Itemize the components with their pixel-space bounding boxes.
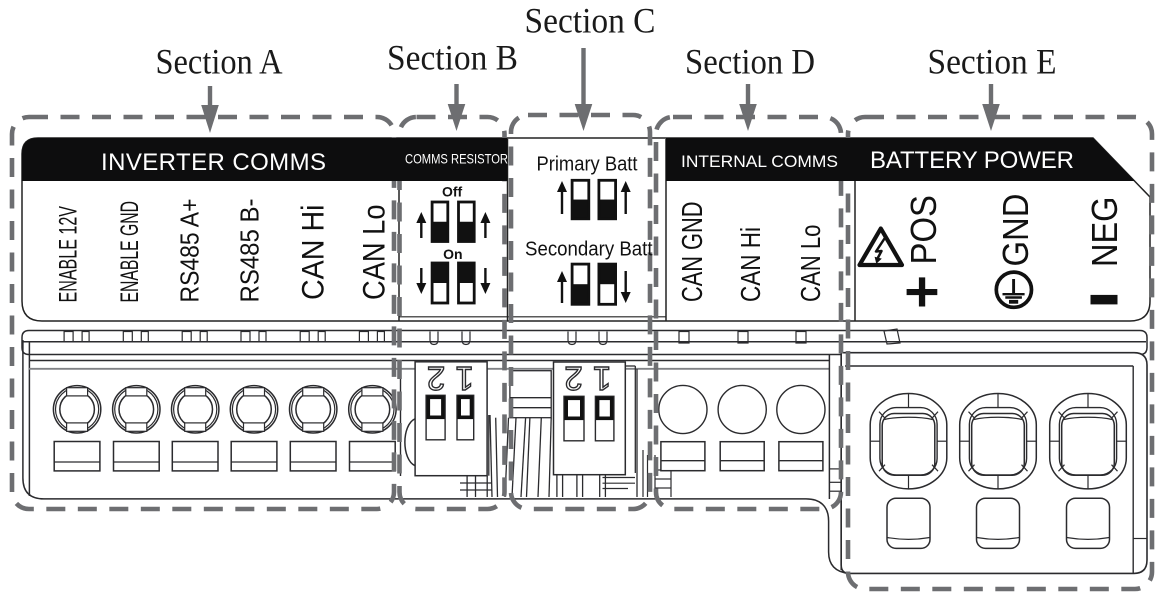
svg-text:CAN Lo: CAN Lo [355, 205, 391, 301]
svg-text:2: 2 [564, 360, 582, 397]
svg-text:RS485 B-: RS485 B- [237, 199, 265, 303]
svg-text:ENABLE 12V: ENABLE 12V [55, 206, 83, 303]
svg-text:INTERNAL COMMS: INTERNAL COMMS [681, 153, 838, 171]
svg-text:CAN Lo: CAN Lo [795, 225, 826, 303]
svg-text:CAN Hi: CAN Hi [295, 205, 331, 301]
svg-text:1: 1 [593, 360, 611, 397]
svg-text:Secondary Batt: Secondary Batt [525, 238, 653, 261]
svg-text:Off: Off [442, 184, 463, 200]
svg-text:Section E: Section E [928, 42, 1057, 82]
svg-text:GND: GND [995, 194, 1036, 267]
svg-text:POS: POS [903, 195, 944, 265]
svg-text:1: 1 [455, 360, 473, 397]
svg-text:Section D: Section D [685, 42, 815, 82]
svg-text:COMMS RESISTOR: COMMS RESISTOR [405, 151, 508, 167]
svg-text:INVERTER COMMS: INVERTER COMMS [101, 149, 326, 176]
svg-text:Section C: Section C [525, 1, 656, 41]
svg-text:Primary Batt: Primary Batt [537, 152, 638, 175]
svg-text:RS485 A+: RS485 A+ [176, 199, 204, 303]
svg-text:On: On [443, 246, 462, 262]
svg-text:Section B: Section B [387, 38, 518, 78]
svg-text:BATTERY POWER: BATTERY POWER [870, 147, 1074, 174]
svg-text:CAN Hi: CAN Hi [735, 227, 766, 302]
svg-text:Section A: Section A [156, 42, 283, 82]
svg-text:2: 2 [427, 360, 445, 397]
svg-text:NEG: NEG [1084, 197, 1125, 268]
svg-text:ENABLE GND: ENABLE GND [116, 201, 144, 303]
svg-text:CAN GND: CAN GND [677, 202, 709, 303]
